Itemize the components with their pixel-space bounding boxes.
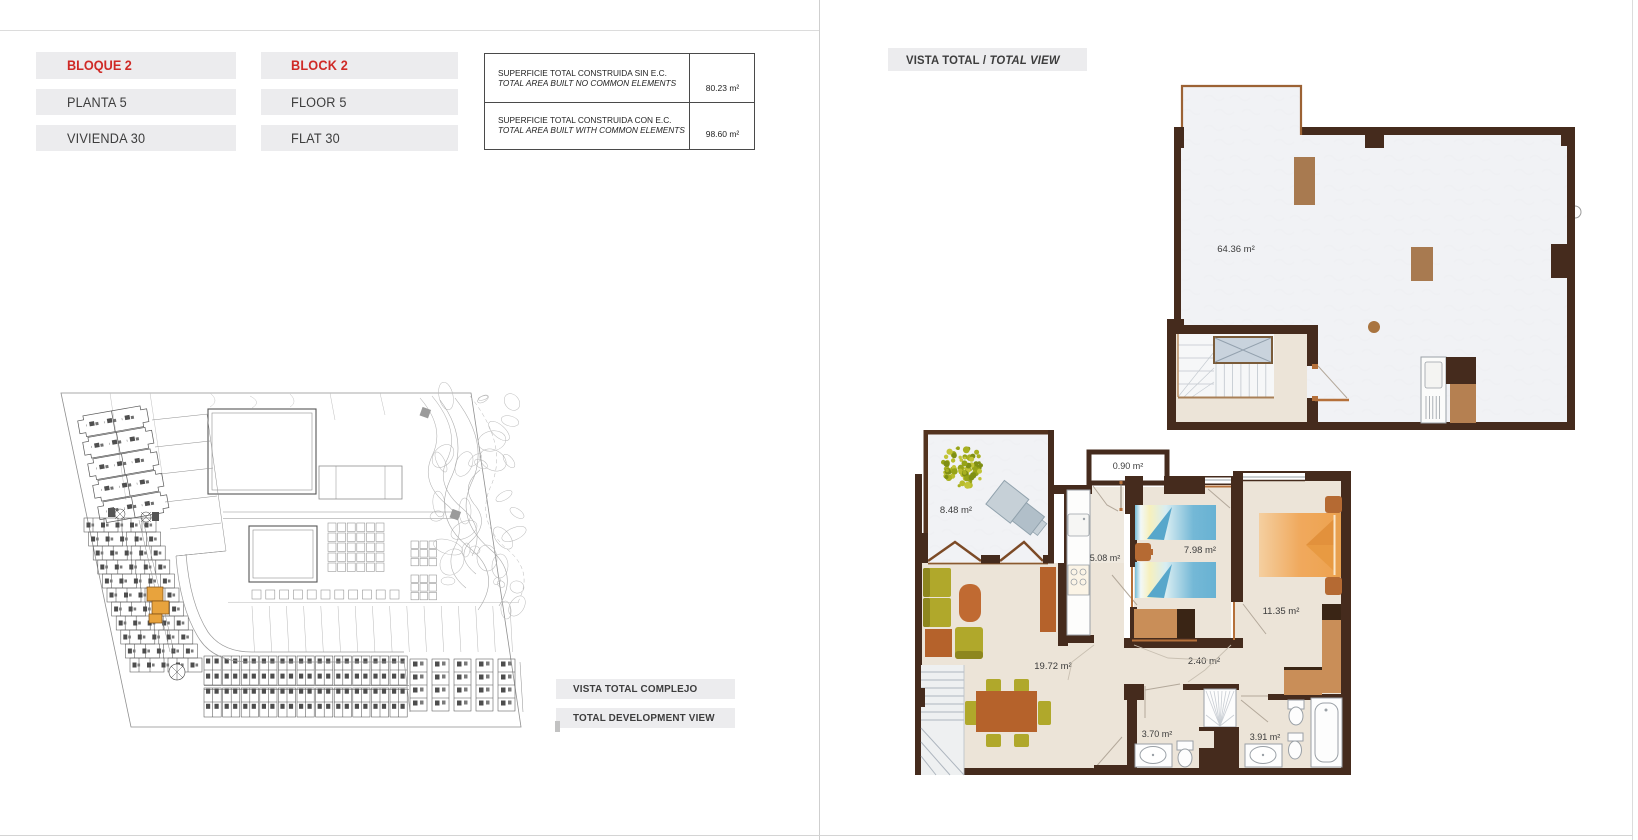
svg-text:8.48 m²: 8.48 m² — [940, 505, 972, 516]
svg-text:0.90 m²: 0.90 m² — [1113, 461, 1144, 471]
svg-text:3.91 m²: 3.91 m² — [1250, 732, 1281, 742]
svg-text:19.72 m²: 19.72 m² — [1034, 661, 1072, 672]
svg-text:2.40 m²: 2.40 m² — [1188, 656, 1220, 667]
svg-text:11.35 m²: 11.35 m² — [1263, 606, 1300, 617]
svg-text:7.98 m²: 7.98 m² — [1184, 545, 1216, 556]
svg-text:5.08 m²: 5.08 m² — [1090, 553, 1121, 563]
svg-text:3.70 m²: 3.70 m² — [1142, 729, 1173, 739]
svg-text:64.36 m²: 64.36 m² — [1217, 244, 1255, 255]
